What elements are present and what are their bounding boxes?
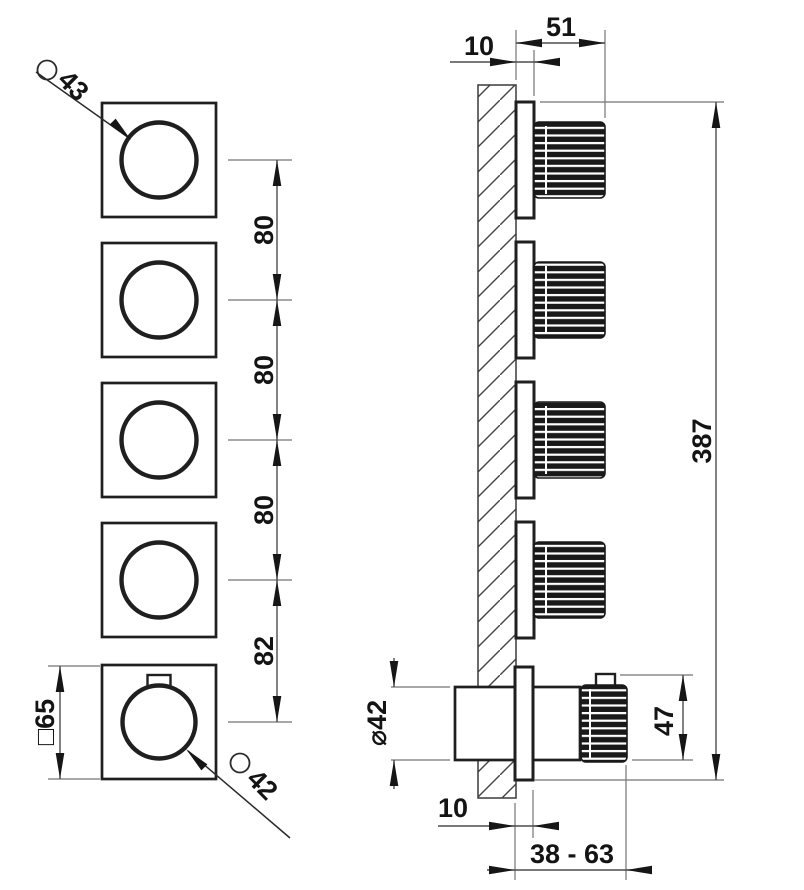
dim-label-10-bottom: 10: [438, 793, 468, 823]
dim-label-38-63: 38 - 63: [530, 839, 614, 869]
side-plate-5: [515, 667, 533, 780]
dim-label-spacing-4: 82: [249, 636, 279, 666]
dim-label-sq65: □65: [30, 699, 60, 745]
dim-label-spacing-2: 80: [249, 355, 279, 385]
side-knobs: [534, 122, 605, 618]
technical-drawing-page: 80 80 80 82 43 42 □65: [0, 0, 804, 890]
side-plate-3: [516, 382, 534, 498]
side-view: 51 10 387 ⌀42: [362, 12, 724, 880]
dim-label-dia42-side: ⌀42: [362, 700, 392, 746]
dim-plate-65: □65: [30, 666, 100, 779]
technical-drawing-svg: 80 80 80 82 43 42 □65: [0, 0, 804, 890]
dim-dia43-leader: 43: [36, 61, 131, 141]
front-view: 80 80 80 82 43 42 □65: [30, 61, 292, 839]
side-knob-2: [534, 262, 605, 338]
diameter-symbol-top: [38, 61, 57, 80]
dim-label-387: 387: [687, 418, 717, 463]
dim-dia42-leader: 42: [186, 749, 290, 838]
side-plate-1: [516, 102, 534, 218]
front-knob-2: [122, 263, 197, 338]
dim-label-spacing-3: 80: [249, 495, 279, 525]
side-plate-2: [516, 242, 534, 358]
side-knob-1: [534, 122, 605, 198]
dim-label-dia43: 43: [52, 64, 94, 106]
side-plate-4: [516, 522, 534, 638]
side-knob-4: [534, 542, 605, 618]
diameter-symbol-bottom: [231, 754, 250, 773]
front-knob-4: [122, 543, 197, 618]
dim-label-10-top: 10: [464, 31, 494, 61]
dim-handle-47: 47: [620, 675, 693, 760]
side-knob-3: [534, 402, 605, 478]
dim-label-51: 51: [546, 12, 576, 42]
front-knob-1: [122, 123, 197, 198]
dim-knob-spacings: 80 80 80 82: [228, 160, 292, 722]
front-knob-3: [122, 403, 197, 478]
side-knob-5: [581, 685, 627, 762]
dim-body-dia42: ⌀42: [362, 658, 450, 789]
dim-label-47: 47: [649, 706, 679, 736]
front-knob-5: [123, 686, 196, 759]
dim-label-spacing-1: 80: [249, 215, 279, 245]
